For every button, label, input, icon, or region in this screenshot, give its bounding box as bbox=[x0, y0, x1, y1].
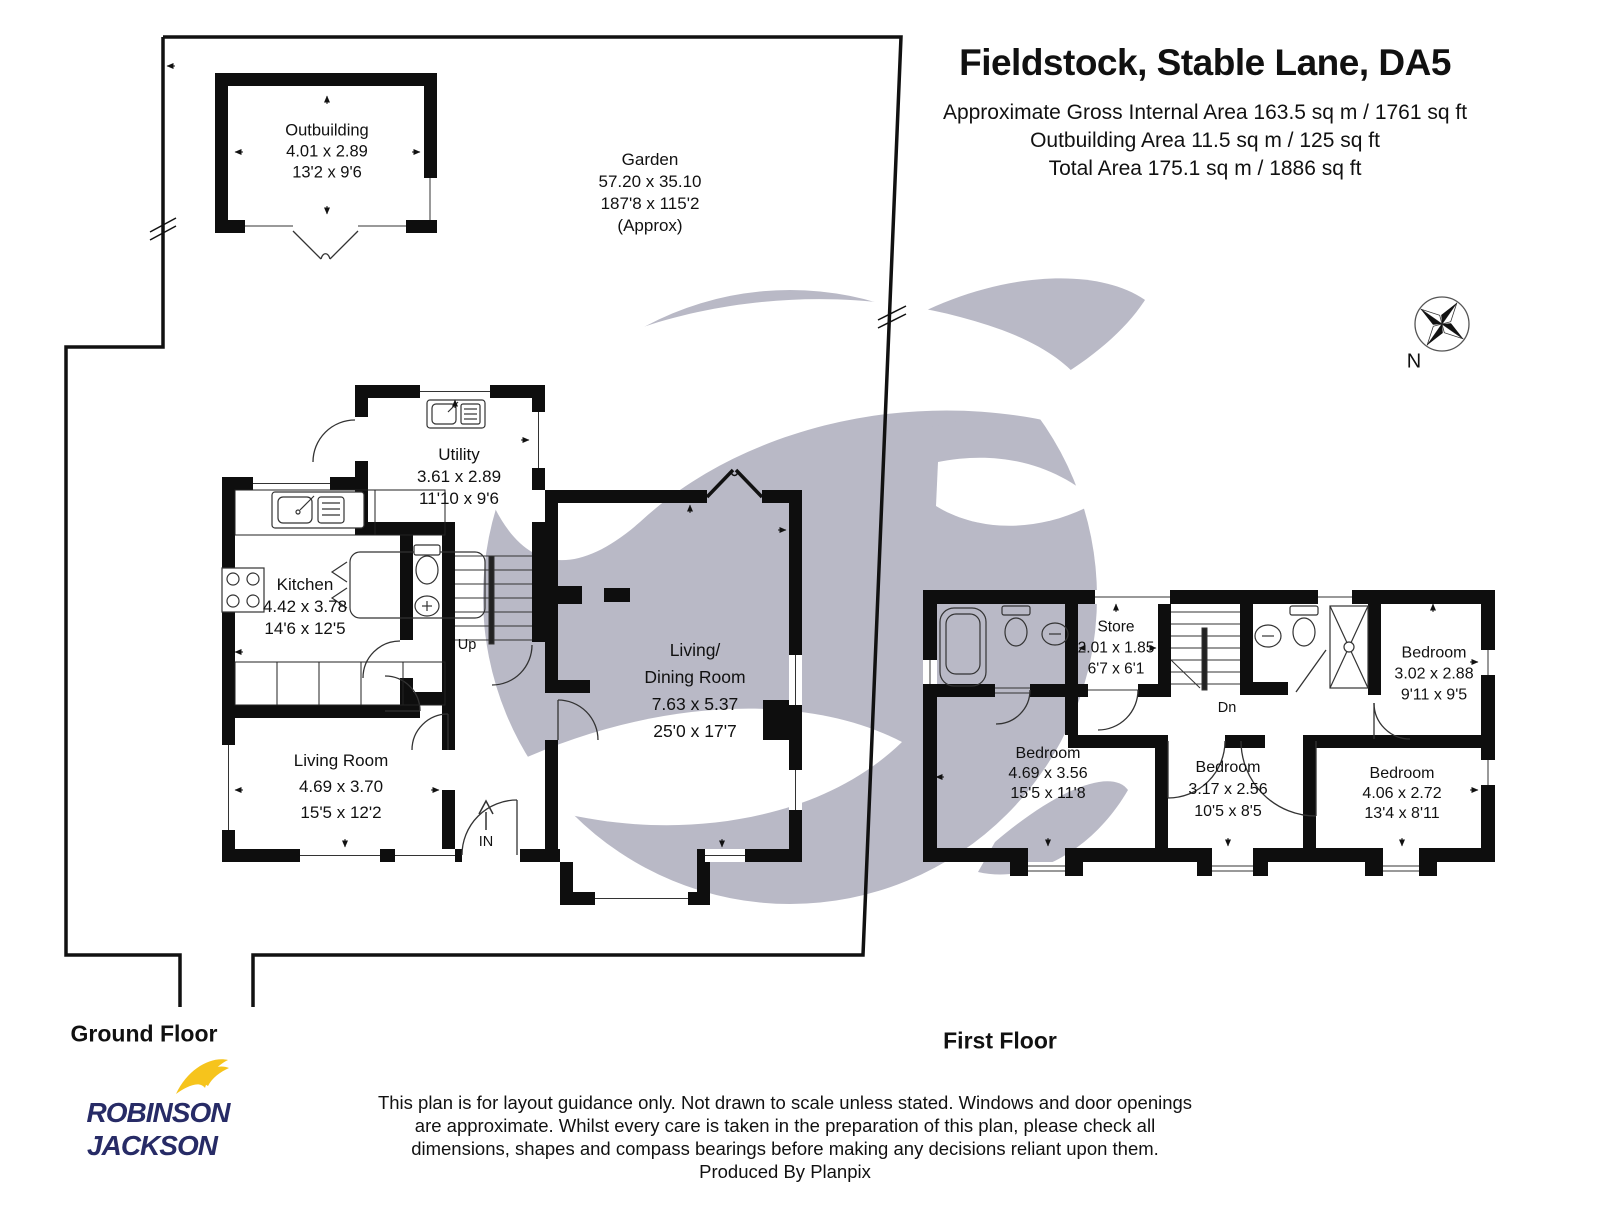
first-floor-stairs bbox=[1171, 612, 1240, 690]
logo-text-robinson: ROBINSON bbox=[87, 1097, 230, 1129]
first-floor-label: First Floor bbox=[943, 1028, 1057, 1055]
hob-icon bbox=[222, 568, 264, 612]
page-title: Fieldstock, Stable Lane, DA5 bbox=[959, 42, 1451, 84]
room-label-living-room: Living Room 4.69 x 3.70 15'5 x 12'2 bbox=[294, 748, 389, 826]
room-label-store: Store 2.01 x 1.85 6'7 x 6'1 bbox=[1078, 617, 1155, 680]
shower-cubicle-icon bbox=[1330, 606, 1368, 688]
ground-floor-label: Ground Floor bbox=[71, 1021, 218, 1048]
room-label-garden: Garden 57.20 x 35.10 187'8 x 115'2 (Appr… bbox=[598, 149, 701, 237]
wc-basin-icon bbox=[415, 596, 439, 616]
entrance-label: IN bbox=[479, 834, 494, 850]
logo-bird-icon bbox=[176, 1059, 229, 1094]
outbuilding-door bbox=[293, 231, 358, 259]
utility-sink-icon bbox=[427, 400, 485, 428]
total-area: Total Area 175.1 sq m / 1886 sq ft bbox=[1049, 157, 1362, 181]
disclaimer-line-3: dimensions, shapes and compass bearings … bbox=[411, 1138, 1159, 1160]
shower-room-fixtures bbox=[1255, 606, 1368, 688]
room-label-utility: Utility 3.61 x 2.89 11'10 x 9'6 bbox=[417, 444, 501, 510]
entrance-arrow-icon bbox=[479, 801, 493, 830]
compass-north-label: N bbox=[1407, 351, 1421, 374]
stairs-up-label: Up bbox=[458, 637, 477, 653]
outbuilding-area: Outbuilding Area 11.5 sq m / 125 sq ft bbox=[1030, 129, 1380, 153]
disclaimer-line-4: Produced By Planpix bbox=[699, 1161, 871, 1183]
logo-text-jackson: JACKSON bbox=[87, 1130, 217, 1162]
disclaimer-line-2: are approximate. Whilst every care is ta… bbox=[415, 1115, 1155, 1137]
shower-basin-icon bbox=[1255, 625, 1281, 647]
room-label-bedroom-main: Bedroom 4.69 x 3.56 15'5 x 11'8 bbox=[1008, 744, 1087, 804]
gross-internal-area: Approximate Gross Internal Area 163.5 sq… bbox=[943, 101, 1467, 125]
garden-name: Garden bbox=[598, 149, 701, 171]
room-label-bedroom-top-right: Bedroom 3.02 x 2.88 9'11 x 9'5 bbox=[1394, 643, 1473, 706]
garden-note: (Approx) bbox=[598, 215, 701, 237]
garden-imperial: 187'8 x 115'2 bbox=[598, 193, 701, 215]
floor-plan-drawing bbox=[0, 0, 1600, 1215]
room-label-living-dining: Living/ Dining Room 7.63 x 5.37 25'0 x 1… bbox=[644, 637, 745, 745]
garden-metric: 57.20 x 35.10 bbox=[598, 171, 701, 193]
room-label-outbuilding: Outbuilding 4.01 x 2.89 13'2 x 9'6 bbox=[285, 121, 368, 184]
compass-rose-icon bbox=[1415, 297, 1469, 351]
shower-toilet-icon bbox=[1290, 606, 1318, 646]
room-label-bedroom-middle: Bedroom 3.17 x 2.56 10'5 x 8'5 bbox=[1188, 757, 1267, 823]
room-label-bedroom-bottom-right: Bedroom 4.06 x 2.72 13'4 x 8'11 bbox=[1362, 764, 1441, 824]
wc-toilet-icon bbox=[414, 545, 440, 584]
kitchen-sink-icon bbox=[272, 492, 364, 528]
disclaimer-line-1: This plan is for layout guidance only. N… bbox=[378, 1092, 1192, 1114]
room-label-kitchen: Kitchen 4.42 x 3.78 14'6 x 12'5 bbox=[263, 574, 347, 640]
stairs-down-label: Dn bbox=[1218, 700, 1237, 716]
